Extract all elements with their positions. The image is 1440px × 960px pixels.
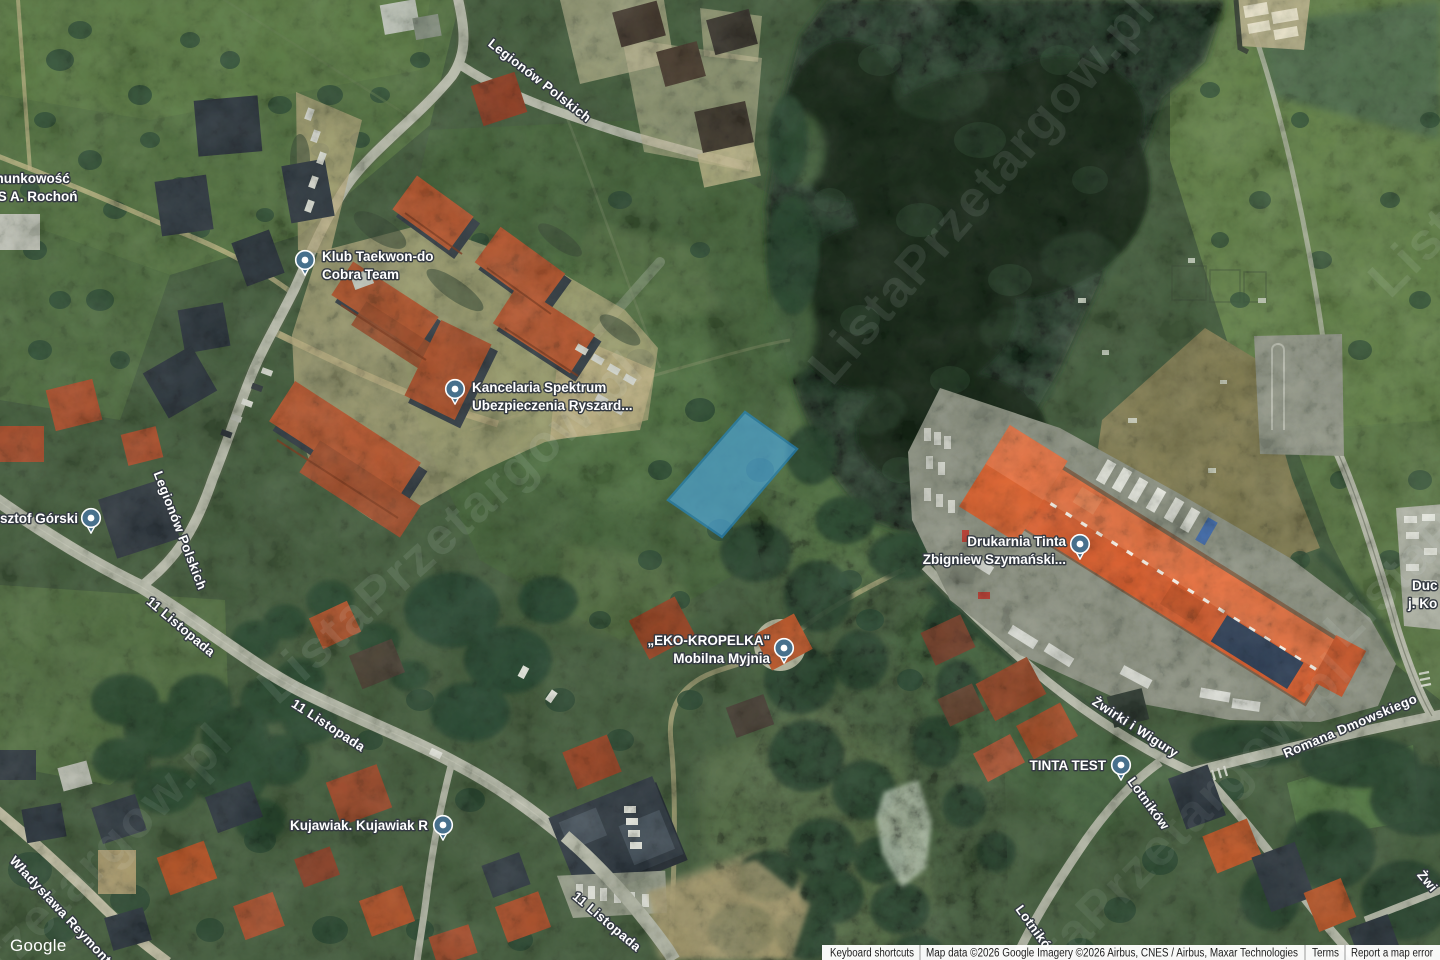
svg-text:Report a map error: Report a map error [1351, 948, 1433, 960]
svg-text:Drukarnia Tinta: Drukarnia Tinta [967, 534, 1066, 549]
svg-text:Kujawiak. Kujawiak R: Kujawiak. Kujawiak R [290, 818, 428, 833]
svg-text:Ubezpieczenia Ryszard...: Ubezpieczenia Ryszard... [472, 398, 633, 413]
svg-text:„EKO-KROPELKA": „EKO-KROPELKA" [647, 633, 770, 648]
svg-text:Kancelaria Spektrum: Kancelaria Spektrum [472, 380, 606, 395]
svg-text:rysztof Górski: rysztof Górski [0, 511, 78, 526]
svg-text:Map data ©2026 Google Imagery: Map data ©2026 Google Imagery ©2026 Airb… [926, 948, 1298, 960]
svg-text:j. Ko: j. Ko [1407, 596, 1437, 611]
svg-text:Duc: Duc [1412, 578, 1438, 593]
svg-text:chunkowość: chunkowość [0, 171, 70, 186]
svg-text:US A. Rochoń: US A. Rochoń [0, 189, 78, 204]
svg-text:Klub Taekwon-do: Klub Taekwon-do [322, 249, 434, 264]
svg-text:Keyboard shortcuts: Keyboard shortcuts [830, 948, 914, 960]
svg-text:TINTA TEST: TINTA TEST [1030, 758, 1107, 773]
svg-text:Mobilna Myjnia: Mobilna Myjnia [673, 651, 770, 666]
svg-text:Google: Google [10, 936, 67, 955]
svg-text:Terms: Terms [1312, 948, 1339, 960]
svg-text:Cobra Team: Cobra Team [322, 267, 399, 282]
svg-text:Zbigniew Szymański...: Zbigniew Szymański... [923, 552, 1066, 567]
